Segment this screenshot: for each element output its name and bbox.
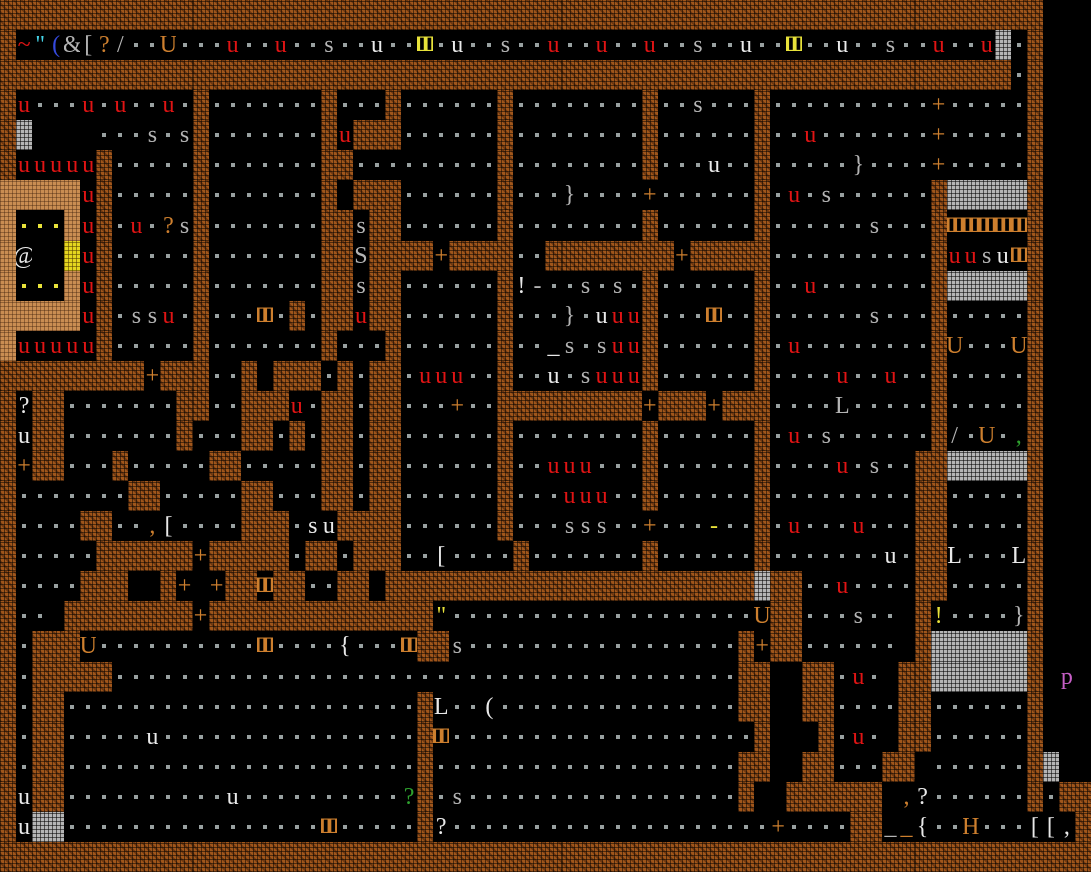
floor-tile[interactable] bbox=[578, 120, 594, 150]
wall-tile[interactable] bbox=[48, 421, 64, 451]
floor-tile[interactable] bbox=[112, 631, 128, 661]
floor-tile[interactable] bbox=[112, 511, 128, 541]
empty-tile[interactable] bbox=[1075, 90, 1091, 120]
floor-tile[interactable] bbox=[481, 120, 497, 150]
empty-tile[interactable] bbox=[1075, 571, 1091, 601]
floor-tile[interactable] bbox=[241, 150, 257, 180]
floor-tile[interactable] bbox=[465, 601, 481, 631]
floor-tile[interactable] bbox=[225, 361, 241, 391]
floor-tile[interactable] bbox=[610, 451, 626, 481]
floor-tile[interactable] bbox=[898, 361, 914, 391]
empty-tile[interactable] bbox=[1043, 90, 1059, 120]
floor-tile[interactable] bbox=[96, 752, 112, 782]
floor-tile[interactable] bbox=[289, 782, 305, 812]
floor-tile[interactable] bbox=[273, 812, 289, 842]
wall-tile[interactable] bbox=[64, 0, 80, 30]
floor-tile[interactable] bbox=[545, 662, 561, 692]
wall-tile[interactable] bbox=[385, 511, 401, 541]
floor-tile[interactable] bbox=[465, 301, 481, 331]
floor-tile[interactable] bbox=[449, 210, 465, 240]
floor-tile[interactable] bbox=[417, 541, 433, 571]
wall-tile[interactable] bbox=[529, 0, 545, 30]
floor-tile[interactable] bbox=[963, 361, 979, 391]
floor-tile[interactable] bbox=[674, 511, 690, 541]
floor-tile[interactable] bbox=[449, 301, 465, 331]
floor-tile[interactable] bbox=[209, 812, 225, 842]
smoothed-wall-tile[interactable] bbox=[995, 451, 1011, 481]
floor-tile[interactable] bbox=[898, 481, 914, 511]
wall-tile[interactable] bbox=[241, 361, 257, 391]
wall-tile[interactable] bbox=[273, 601, 289, 631]
item-glyph[interactable]: - bbox=[706, 511, 722, 541]
floor-tile[interactable] bbox=[257, 692, 273, 722]
floor-tile[interactable] bbox=[882, 601, 898, 631]
floor-tile[interactable] bbox=[786, 271, 802, 301]
wall-tile[interactable] bbox=[979, 60, 995, 90]
floor-tile[interactable] bbox=[401, 301, 417, 331]
floor-tile[interactable] bbox=[642, 812, 658, 842]
wall-tile[interactable] bbox=[497, 120, 513, 150]
floor-tile[interactable] bbox=[529, 210, 545, 240]
floor-tile[interactable] bbox=[176, 692, 192, 722]
floor-tile[interactable] bbox=[144, 241, 160, 271]
floor-tile[interactable] bbox=[722, 421, 738, 451]
floor-tile[interactable] bbox=[144, 210, 160, 240]
floor-tile[interactable] bbox=[32, 210, 48, 240]
empty-tile[interactable] bbox=[1059, 60, 1075, 90]
empty-tile[interactable] bbox=[882, 662, 898, 692]
wall-tile[interactable] bbox=[337, 601, 353, 631]
floor-tile[interactable] bbox=[257, 180, 273, 210]
empty-tile[interactable] bbox=[1075, 391, 1091, 421]
floor-tile[interactable] bbox=[738, 120, 754, 150]
wall-tile[interactable] bbox=[786, 0, 802, 30]
floor-tile[interactable] bbox=[401, 210, 417, 240]
creature-glyph-s[interactable]: s bbox=[449, 631, 465, 661]
floor-tile[interactable] bbox=[642, 601, 658, 631]
floor-tile[interactable] bbox=[241, 662, 257, 692]
floor-tile[interactable] bbox=[706, 541, 722, 571]
floor-tile[interactable] bbox=[369, 150, 385, 180]
empty-tile[interactable] bbox=[1059, 601, 1075, 631]
floor-tile[interactable] bbox=[963, 541, 979, 571]
floor-tile[interactable] bbox=[417, 271, 433, 301]
floor-tile[interactable] bbox=[690, 331, 706, 361]
floor-tile[interactable] bbox=[963, 782, 979, 812]
floor-tile[interactable] bbox=[545, 120, 561, 150]
floor-tile[interactable] bbox=[722, 752, 738, 782]
floor-tile[interactable] bbox=[513, 722, 529, 752]
floor-tile[interactable] bbox=[898, 391, 914, 421]
wall-tile[interactable] bbox=[353, 601, 369, 631]
smoothed-wall-tile[interactable] bbox=[963, 662, 979, 692]
floor-tile[interactable] bbox=[529, 782, 545, 812]
floor-tile[interactable] bbox=[305, 662, 321, 692]
creature-glyph-s[interactable]: s bbox=[176, 210, 192, 240]
wall-tile[interactable] bbox=[273, 361, 289, 391]
wall-tile[interactable] bbox=[193, 180, 209, 210]
bars-glyph[interactable]: Ⅲ bbox=[257, 571, 273, 601]
wall-tile[interactable] bbox=[64, 842, 80, 872]
floor-tile[interactable] bbox=[80, 722, 96, 752]
floor-tile[interactable] bbox=[706, 782, 722, 812]
floor-tile[interactable] bbox=[898, 451, 914, 481]
floor-tile[interactable] bbox=[738, 541, 754, 571]
floor-tile[interactable] bbox=[401, 692, 417, 722]
floor-tile[interactable] bbox=[882, 481, 898, 511]
floor-tile[interactable] bbox=[963, 90, 979, 120]
wall-tile[interactable] bbox=[193, 90, 209, 120]
wall-tile[interactable] bbox=[241, 842, 257, 872]
floor-tile[interactable] bbox=[144, 271, 160, 301]
floor-tile[interactable] bbox=[882, 180, 898, 210]
creature-glyph-u[interactable]: u bbox=[80, 90, 96, 120]
wall-tile[interactable] bbox=[257, 842, 273, 872]
item-glyph[interactable]: ( bbox=[481, 692, 497, 722]
creature-glyph-u[interactable]: u bbox=[433, 361, 449, 391]
floor-tile[interactable] bbox=[562, 692, 578, 722]
floor-tile[interactable] bbox=[465, 812, 481, 842]
floor-tile[interactable] bbox=[128, 331, 144, 361]
creature-glyph-u[interactable]: u bbox=[626, 361, 642, 391]
wall-tile[interactable] bbox=[353, 842, 369, 872]
floor-tile[interactable] bbox=[128, 150, 144, 180]
floor-tile[interactable] bbox=[257, 150, 273, 180]
floor-tile[interactable] bbox=[529, 150, 545, 180]
floor-tile[interactable] bbox=[128, 631, 144, 661]
wall-tile[interactable] bbox=[385, 421, 401, 451]
creature-glyph-u[interactable]: u bbox=[882, 541, 898, 571]
empty-tile[interactable] bbox=[1043, 271, 1059, 301]
floor-tile[interactable] bbox=[658, 361, 674, 391]
floor-tile[interactable] bbox=[866, 511, 882, 541]
creature-glyph-u[interactable]: u bbox=[802, 120, 818, 150]
floor-tile[interactable] bbox=[433, 421, 449, 451]
wall-tile[interactable] bbox=[1027, 722, 1043, 752]
floor-tile[interactable] bbox=[465, 421, 481, 451]
wall-tile[interactable] bbox=[0, 451, 16, 481]
wall-tile[interactable] bbox=[802, 60, 818, 90]
wall-tile[interactable] bbox=[866, 812, 882, 842]
creature-glyph-u[interactable]: u bbox=[610, 331, 626, 361]
floor-tile[interactable] bbox=[979, 571, 995, 601]
floor-tile[interactable] bbox=[545, 692, 561, 722]
empty-tile[interactable] bbox=[144, 571, 160, 601]
floor-tile[interactable] bbox=[578, 331, 594, 361]
floor-tile[interactable] bbox=[818, 631, 834, 661]
empty-tile[interactable] bbox=[754, 782, 770, 812]
empty-tile[interactable] bbox=[1043, 210, 1059, 240]
floor-tile[interactable] bbox=[176, 90, 192, 120]
bars-glyph[interactable]: Ⅲ bbox=[321, 812, 337, 842]
floor-tile[interactable] bbox=[305, 120, 321, 150]
floor-tile[interactable] bbox=[80, 752, 96, 782]
floor-tile[interactable] bbox=[770, 331, 786, 361]
floor-tile[interactable] bbox=[353, 631, 369, 661]
empty-tile[interactable] bbox=[1043, 692, 1059, 722]
floor-tile[interactable] bbox=[96, 481, 112, 511]
wall-tile[interactable] bbox=[642, 301, 658, 331]
floor-tile[interactable] bbox=[225, 752, 241, 782]
floor-tile[interactable] bbox=[658, 481, 674, 511]
empty-tile[interactable] bbox=[1059, 391, 1075, 421]
floor-tile[interactable] bbox=[995, 120, 1011, 150]
wall-tile[interactable] bbox=[642, 271, 658, 301]
floor-tile[interactable] bbox=[562, 30, 578, 60]
floor-tile[interactable] bbox=[834, 631, 850, 661]
floor-tile[interactable] bbox=[144, 631, 160, 661]
floor-tile[interactable] bbox=[770, 541, 786, 571]
floor-tile[interactable] bbox=[241, 631, 257, 661]
floor-tile[interactable] bbox=[786, 361, 802, 391]
floor-tile[interactable] bbox=[722, 301, 738, 331]
tan-wall-tile[interactable] bbox=[0, 301, 16, 331]
item-glyph[interactable]: } bbox=[850, 150, 866, 180]
wall-tile[interactable] bbox=[337, 150, 353, 180]
floor-tile[interactable] bbox=[706, 481, 722, 511]
floor-tile[interactable] bbox=[417, 421, 433, 451]
wall-tile[interactable] bbox=[16, 60, 32, 90]
wall-tile[interactable] bbox=[834, 0, 850, 30]
item-glyph[interactable]: U bbox=[160, 30, 176, 60]
wall-tile[interactable] bbox=[321, 0, 337, 30]
wall-tile[interactable] bbox=[850, 60, 866, 90]
floor-tile[interactable] bbox=[513, 361, 529, 391]
floor-tile[interactable] bbox=[578, 752, 594, 782]
wall-tile[interactable] bbox=[947, 0, 963, 30]
floor-tile[interactable] bbox=[690, 301, 706, 331]
floor-tile[interactable] bbox=[979, 752, 995, 782]
wall-tile[interactable] bbox=[48, 451, 64, 481]
wall-tile[interactable] bbox=[1059, 842, 1075, 872]
wall-tile[interactable] bbox=[802, 662, 818, 692]
floor-tile[interactable] bbox=[16, 571, 32, 601]
wall-tile[interactable] bbox=[48, 782, 64, 812]
floor-tile[interactable] bbox=[898, 331, 914, 361]
creature-glyph-u[interactable]: u bbox=[160, 90, 176, 120]
wall-tile[interactable] bbox=[401, 241, 417, 271]
wall-tile[interactable] bbox=[529, 842, 545, 872]
creature-glyph-s[interactable]: s bbox=[321, 30, 337, 60]
wall-tile[interactable] bbox=[690, 241, 706, 271]
floor-tile[interactable] bbox=[674, 90, 690, 120]
floor-tile[interactable] bbox=[481, 421, 497, 451]
wall-tile[interactable] bbox=[995, 842, 1011, 872]
floor-tile[interactable] bbox=[433, 301, 449, 331]
empty-tile[interactable] bbox=[1059, 90, 1075, 120]
floor-tile[interactable] bbox=[193, 421, 209, 451]
wall-tile[interactable] bbox=[642, 210, 658, 240]
floor-tile[interactable] bbox=[225, 301, 241, 331]
wall-tile[interactable] bbox=[818, 842, 834, 872]
floor-tile[interactable] bbox=[337, 662, 353, 692]
wall-tile[interactable] bbox=[578, 391, 594, 421]
creature-glyph-u[interactable]: u bbox=[545, 451, 561, 481]
floor-tile[interactable] bbox=[112, 722, 128, 752]
floor-tile[interactable] bbox=[915, 30, 931, 60]
item-glyph[interactable]: U bbox=[947, 331, 963, 361]
item-glyph[interactable]: ? bbox=[16, 391, 32, 421]
wall-tile[interactable] bbox=[48, 361, 64, 391]
floor-tile[interactable] bbox=[722, 120, 738, 150]
floor-tile[interactable] bbox=[594, 180, 610, 210]
wall-tile[interactable] bbox=[1027, 241, 1043, 271]
floor-tile[interactable] bbox=[128, 722, 144, 752]
wall-tile[interactable] bbox=[385, 60, 401, 90]
wall-tile[interactable] bbox=[562, 0, 578, 30]
smoothed-wall-tile[interactable] bbox=[32, 812, 48, 842]
wall-tile[interactable] bbox=[513, 571, 529, 601]
floor-tile[interactable] bbox=[417, 331, 433, 361]
wall-tile[interactable] bbox=[48, 662, 64, 692]
floor-tile[interactable] bbox=[626, 90, 642, 120]
floor-tile[interactable] bbox=[770, 150, 786, 180]
wall-tile[interactable] bbox=[353, 571, 369, 601]
wall-tile[interactable] bbox=[931, 60, 947, 90]
wall-tile[interactable] bbox=[321, 391, 337, 421]
wall-tile[interactable] bbox=[241, 541, 257, 571]
empty-tile[interactable] bbox=[1075, 120, 1091, 150]
wall-tile[interactable] bbox=[722, 60, 738, 90]
wall-tile[interactable] bbox=[32, 722, 48, 752]
wall-tile[interactable] bbox=[754, 361, 770, 391]
floor-tile[interactable] bbox=[128, 241, 144, 271]
floor-tile[interactable] bbox=[995, 752, 1011, 782]
empty-tile[interactable] bbox=[1059, 180, 1075, 210]
wall-tile[interactable] bbox=[369, 241, 385, 271]
floor-tile[interactable] bbox=[818, 601, 834, 631]
floor-tile[interactable] bbox=[1011, 812, 1027, 842]
floor-tile[interactable] bbox=[674, 662, 690, 692]
wall-tile[interactable] bbox=[64, 361, 80, 391]
floor-tile[interactable] bbox=[706, 210, 722, 240]
empty-tile[interactable] bbox=[786, 722, 802, 752]
door-glyph[interactable]: + bbox=[144, 361, 160, 391]
floor-tile[interactable] bbox=[209, 662, 225, 692]
floor-tile[interactable] bbox=[674, 301, 690, 331]
empty-tile[interactable] bbox=[1075, 662, 1091, 692]
floor-tile[interactable] bbox=[738, 210, 754, 240]
wall-tile[interactable] bbox=[273, 541, 289, 571]
floor-tile[interactable] bbox=[449, 812, 465, 842]
floor-tile[interactable] bbox=[305, 812, 321, 842]
floor-tile[interactable] bbox=[658, 421, 674, 451]
wall-tile[interactable] bbox=[193, 120, 209, 150]
wall-tile[interactable] bbox=[80, 511, 96, 541]
floor-tile[interactable] bbox=[529, 752, 545, 782]
floor-tile[interactable] bbox=[417, 301, 433, 331]
floor-tile[interactable] bbox=[786, 150, 802, 180]
creature-glyph-s[interactable]: s bbox=[353, 271, 369, 301]
floor-tile[interactable] bbox=[144, 782, 160, 812]
floor-tile[interactable] bbox=[209, 90, 225, 120]
empty-tile[interactable] bbox=[770, 692, 786, 722]
floor-tile[interactable] bbox=[722, 782, 738, 812]
floor-tile[interactable] bbox=[401, 361, 417, 391]
wall-tile[interactable] bbox=[1075, 782, 1091, 812]
wall-tile[interactable] bbox=[1027, 782, 1043, 812]
creature-glyph-u[interactable]: u bbox=[578, 481, 594, 511]
floor-tile[interactable] bbox=[850, 301, 866, 331]
wall-tile[interactable] bbox=[497, 391, 513, 421]
floor-tile[interactable] bbox=[882, 511, 898, 541]
floor-tile[interactable] bbox=[786, 481, 802, 511]
floor-tile[interactable] bbox=[241, 90, 257, 120]
floor-tile[interactable] bbox=[802, 210, 818, 240]
wall-tile[interactable] bbox=[915, 571, 931, 601]
floor-tile[interactable] bbox=[128, 451, 144, 481]
floor-tile[interactable] bbox=[513, 451, 529, 481]
empty-tile[interactable] bbox=[369, 571, 385, 601]
floor-tile[interactable] bbox=[802, 30, 818, 60]
empty-tile[interactable] bbox=[1075, 210, 1091, 240]
floor-tile[interactable] bbox=[176, 451, 192, 481]
wall-tile[interactable] bbox=[722, 0, 738, 30]
creature-glyph-u[interactable]: u bbox=[626, 331, 642, 361]
floor-tile[interactable] bbox=[193, 782, 209, 812]
floor-tile[interactable] bbox=[674, 722, 690, 752]
floor-tile[interactable] bbox=[979, 782, 995, 812]
floor-tile[interactable] bbox=[241, 241, 257, 271]
floor-tile[interactable] bbox=[979, 391, 995, 421]
floor-tile[interactable] bbox=[562, 782, 578, 812]
wall-tile[interactable] bbox=[931, 421, 947, 451]
floor-tile[interactable] bbox=[209, 180, 225, 210]
creature-glyph-u[interactable]: u bbox=[562, 451, 578, 481]
floor-tile[interactable] bbox=[594, 150, 610, 180]
floor-tile[interactable] bbox=[882, 150, 898, 180]
wall-tile[interactable] bbox=[995, 0, 1011, 30]
floor-tile[interactable] bbox=[529, 30, 545, 60]
wall-tile[interactable] bbox=[1027, 331, 1043, 361]
creature-glyph-u[interactable]: u bbox=[353, 301, 369, 331]
door-glyph[interactable]: + bbox=[931, 150, 947, 180]
floor-tile[interactable] bbox=[690, 631, 706, 661]
floor-tile[interactable] bbox=[273, 150, 289, 180]
floor-tile[interactable] bbox=[465, 271, 481, 301]
floor-tile[interactable] bbox=[193, 30, 209, 60]
wall-tile[interactable] bbox=[802, 842, 818, 872]
item-glyph[interactable]: ~ bbox=[16, 30, 32, 60]
floor-tile[interactable] bbox=[369, 752, 385, 782]
floor-tile[interactable] bbox=[465, 120, 481, 150]
empty-tile[interactable] bbox=[1059, 752, 1075, 782]
creature-glyph-u[interactable]: u bbox=[834, 361, 850, 391]
floor-tile[interactable] bbox=[289, 511, 305, 541]
floor-tile[interactable] bbox=[305, 631, 321, 661]
floor-tile[interactable] bbox=[722, 692, 738, 722]
wall-tile[interactable] bbox=[898, 752, 914, 782]
floor-tile[interactable] bbox=[963, 601, 979, 631]
floor-tile[interactable] bbox=[562, 541, 578, 571]
empty-tile[interactable] bbox=[1075, 271, 1091, 301]
floor-tile[interactable] bbox=[690, 511, 706, 541]
floor-tile[interactable] bbox=[128, 662, 144, 692]
floor-tile[interactable] bbox=[144, 692, 160, 722]
floor-tile[interactable] bbox=[738, 90, 754, 120]
floor-tile[interactable] bbox=[433, 90, 449, 120]
floor-tile[interactable] bbox=[112, 271, 128, 301]
wall-tile[interactable] bbox=[786, 782, 802, 812]
floor-tile[interactable] bbox=[979, 150, 995, 180]
wall-tile[interactable] bbox=[160, 842, 176, 872]
wall-tile[interactable] bbox=[529, 60, 545, 90]
creature-glyph-u[interactable]: u bbox=[594, 301, 610, 331]
floor-tile[interactable] bbox=[465, 631, 481, 661]
wall-tile[interactable] bbox=[257, 511, 273, 541]
wall-tile[interactable] bbox=[722, 842, 738, 872]
floor-tile[interactable] bbox=[433, 150, 449, 180]
